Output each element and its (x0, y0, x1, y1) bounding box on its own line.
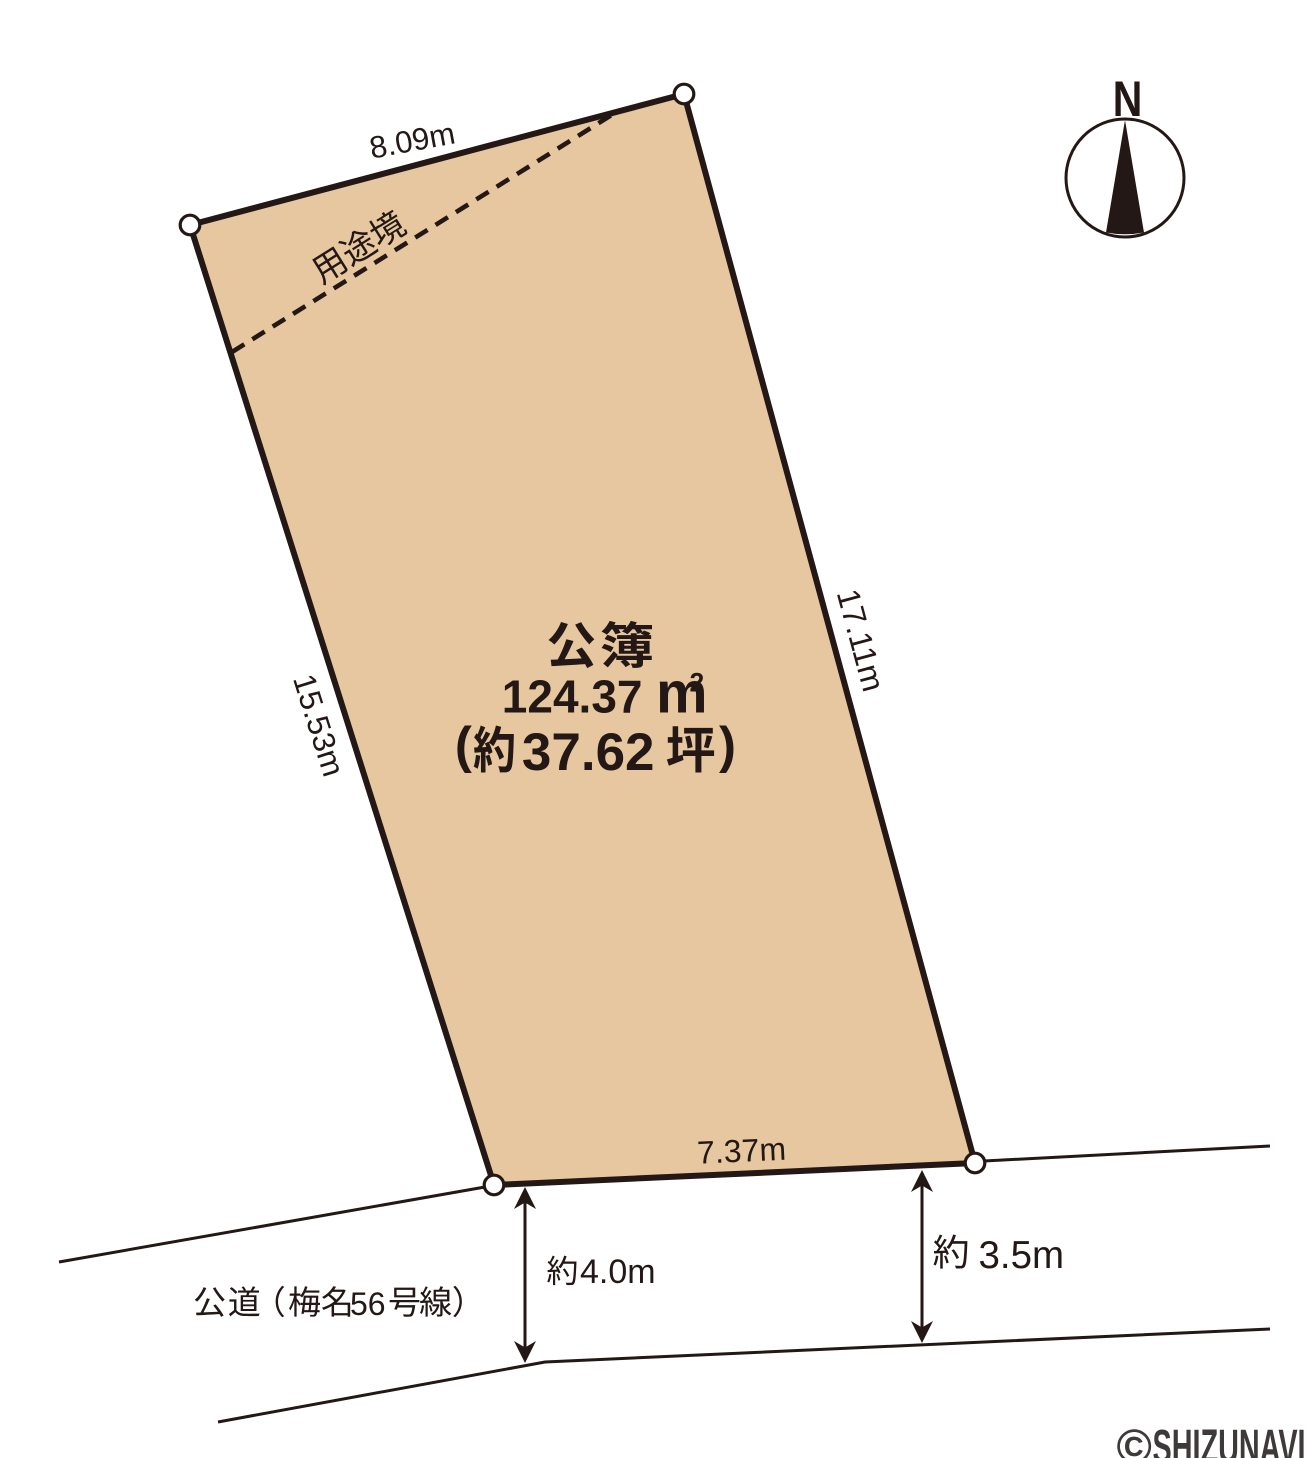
svg-text:37.62: 37.62 (522, 723, 655, 782)
svg-text:7.37m: 7.37m (696, 1131, 786, 1171)
svg-text:2: 2 (690, 667, 705, 697)
svg-text:©: © (1117, 1421, 1152, 1458)
svg-text:(: ( (455, 717, 472, 774)
svg-text:56: 56 (350, 1286, 386, 1322)
svg-text:4.0m: 4.0m (580, 1253, 656, 1291)
svg-text:): ) (719, 717, 736, 774)
svg-text:SHIZUNAVI: SHIZUNAVI (1153, 1421, 1306, 1458)
svg-text:124.37: 124.37 (502, 671, 643, 723)
svg-text:3.5m: 3.5m (979, 1234, 1065, 1277)
svg-text:N: N (1113, 71, 1143, 127)
